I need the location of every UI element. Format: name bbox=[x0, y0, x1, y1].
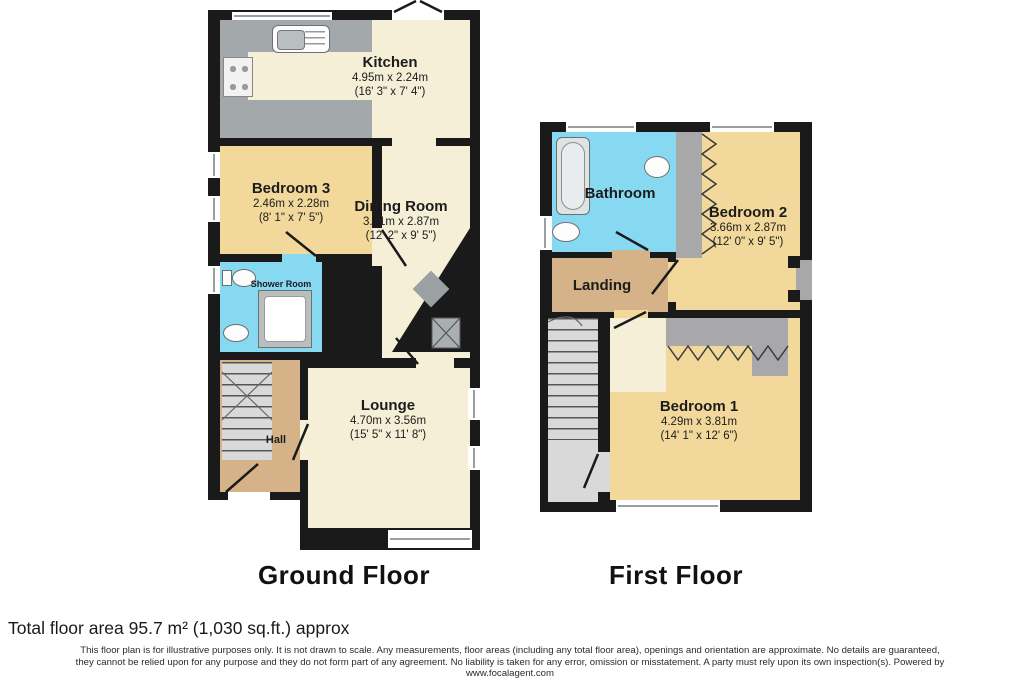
total-floor-area: Total floor area 95.7 m² (1,030 sq.ft.) … bbox=[8, 618, 349, 639]
dining-lounge-opening bbox=[416, 356, 454, 370]
bedroom1-wardrobe-corner bbox=[752, 346, 788, 376]
bathroom-toilet bbox=[552, 222, 580, 242]
lounge-window-side-1 bbox=[468, 388, 480, 420]
dining-room bbox=[382, 146, 470, 358]
bedroom3-label: Bedroom 3 2.46m x 2.28m (8' 1" x 7' 5") bbox=[226, 180, 356, 226]
bedroom2-window bbox=[710, 122, 774, 132]
room-dims-imperial: (12' 0" x 9' 5") bbox=[688, 236, 808, 250]
room-name: Shower Room bbox=[231, 279, 331, 290]
dining-room-label: Dining Room 3.71m x 2.87m (12' 2" x 9' 5… bbox=[345, 198, 457, 244]
room-dims-metric: 3.66m x 2.87m bbox=[688, 222, 808, 236]
room-name: Bedroom 3 bbox=[226, 180, 356, 198]
disclaimer-text: This floor plan is for illustrative purp… bbox=[0, 645, 1020, 680]
ground-floor-title: Ground Floor bbox=[208, 560, 480, 591]
floorplan-page: Kitchen 4.95m x 2.24m (16' 3" x 7' 4") B… bbox=[0, 0, 1020, 687]
bathtub bbox=[556, 137, 590, 215]
room-dims-metric: 4.95m x 2.24m bbox=[330, 72, 450, 86]
room-dims-imperial: (16' 3" x 7' 4") bbox=[330, 86, 450, 100]
stairwell-void bbox=[548, 440, 598, 502]
shower-door-opening bbox=[282, 254, 316, 262]
kitchen-sink bbox=[272, 25, 330, 53]
room-dims-metric: 2.46m x 2.28m bbox=[226, 198, 356, 212]
chimney-stub-1 bbox=[788, 256, 800, 268]
front-door-opening bbox=[228, 492, 270, 502]
hob bbox=[223, 57, 253, 97]
room-name: Bedroom 2 bbox=[688, 204, 808, 222]
bathroom-window bbox=[566, 122, 636, 132]
first-floor-title: First Floor bbox=[540, 560, 812, 591]
room-name: Hall bbox=[246, 434, 306, 447]
stairwell-opening bbox=[598, 452, 610, 492]
shower-tray bbox=[264, 296, 306, 342]
room-name: Landing bbox=[552, 277, 652, 295]
bedroom2-label: Bedroom 2 3.66m x 2.87m (12' 0" x 9' 5") bbox=[688, 204, 808, 250]
bedroom1-label: Bedroom 1 4.29m x 3.81m (14' 1" x 12' 6"… bbox=[638, 398, 760, 444]
bedroom3-window-2 bbox=[208, 196, 220, 222]
bathroom-basin bbox=[644, 156, 670, 178]
room-dims-metric: 3.71m x 2.87m bbox=[345, 216, 457, 230]
back-door-opening bbox=[392, 10, 444, 20]
room-name: Lounge bbox=[328, 397, 448, 415]
room-name: Bedroom 1 bbox=[638, 398, 760, 416]
bathroom-door-opening bbox=[612, 250, 650, 258]
bedroom1-wardrobe bbox=[666, 318, 788, 346]
wash-basin bbox=[223, 324, 249, 342]
bedroom1-floor-inset bbox=[610, 318, 666, 392]
room-dims-imperial: (15' 5" x 11' 8") bbox=[328, 429, 448, 443]
bedroom2-door-opening bbox=[668, 262, 676, 302]
bathroom-side-window bbox=[538, 216, 552, 250]
lounge-window-side-2 bbox=[468, 446, 480, 470]
kitchen-window bbox=[232, 12, 332, 20]
room-dims-imperial: (12' 2" x 9' 5") bbox=[345, 230, 457, 244]
room-dims-metric: 4.70m x 3.56m bbox=[328, 415, 448, 429]
room-dims-imperial: (14' 1" x 12' 6") bbox=[638, 430, 760, 444]
room-name: Kitchen bbox=[330, 54, 450, 72]
sink-bowl bbox=[277, 30, 305, 50]
lounge-room bbox=[308, 368, 470, 528]
shower-window bbox=[208, 266, 220, 294]
disclaimer-line-1: This floor plan is for illustrative purp… bbox=[0, 645, 1020, 657]
lounge-bay-window bbox=[388, 530, 472, 548]
lounge-label: Lounge 4.70m x 3.56m (15' 5" x 11' 8") bbox=[328, 397, 448, 443]
hall-label: Hall bbox=[246, 434, 306, 447]
room-name: Dining Room bbox=[345, 198, 457, 216]
kitchen-label: Kitchen 4.95m x 2.24m (16' 3" x 7' 4") bbox=[330, 54, 450, 100]
exterior-notch bbox=[208, 500, 300, 550]
bathroom-label: Bathroom bbox=[570, 185, 670, 203]
room-dims-imperial: (8' 1" x 7' 5") bbox=[226, 212, 356, 226]
room-dims-metric: 4.29m x 3.81m bbox=[638, 416, 760, 430]
first-floor-stairs bbox=[548, 318, 598, 440]
bedroom1-window bbox=[616, 500, 720, 512]
room-name: Bathroom bbox=[570, 185, 670, 203]
disclaimer-line-3: www.focalagent.com bbox=[0, 668, 1020, 680]
disclaimer-line-2: they cannot be relied upon for any purpo… bbox=[0, 657, 1020, 669]
landing-label: Landing bbox=[552, 277, 652, 295]
chimney-stub-2 bbox=[788, 290, 800, 302]
shower-room-label: Shower Room bbox=[231, 279, 331, 290]
sink-drainer bbox=[305, 31, 325, 47]
bedroom1-door-opening bbox=[614, 310, 648, 318]
shower-cubicle bbox=[258, 290, 312, 348]
bedroom3-window-1 bbox=[208, 152, 220, 178]
